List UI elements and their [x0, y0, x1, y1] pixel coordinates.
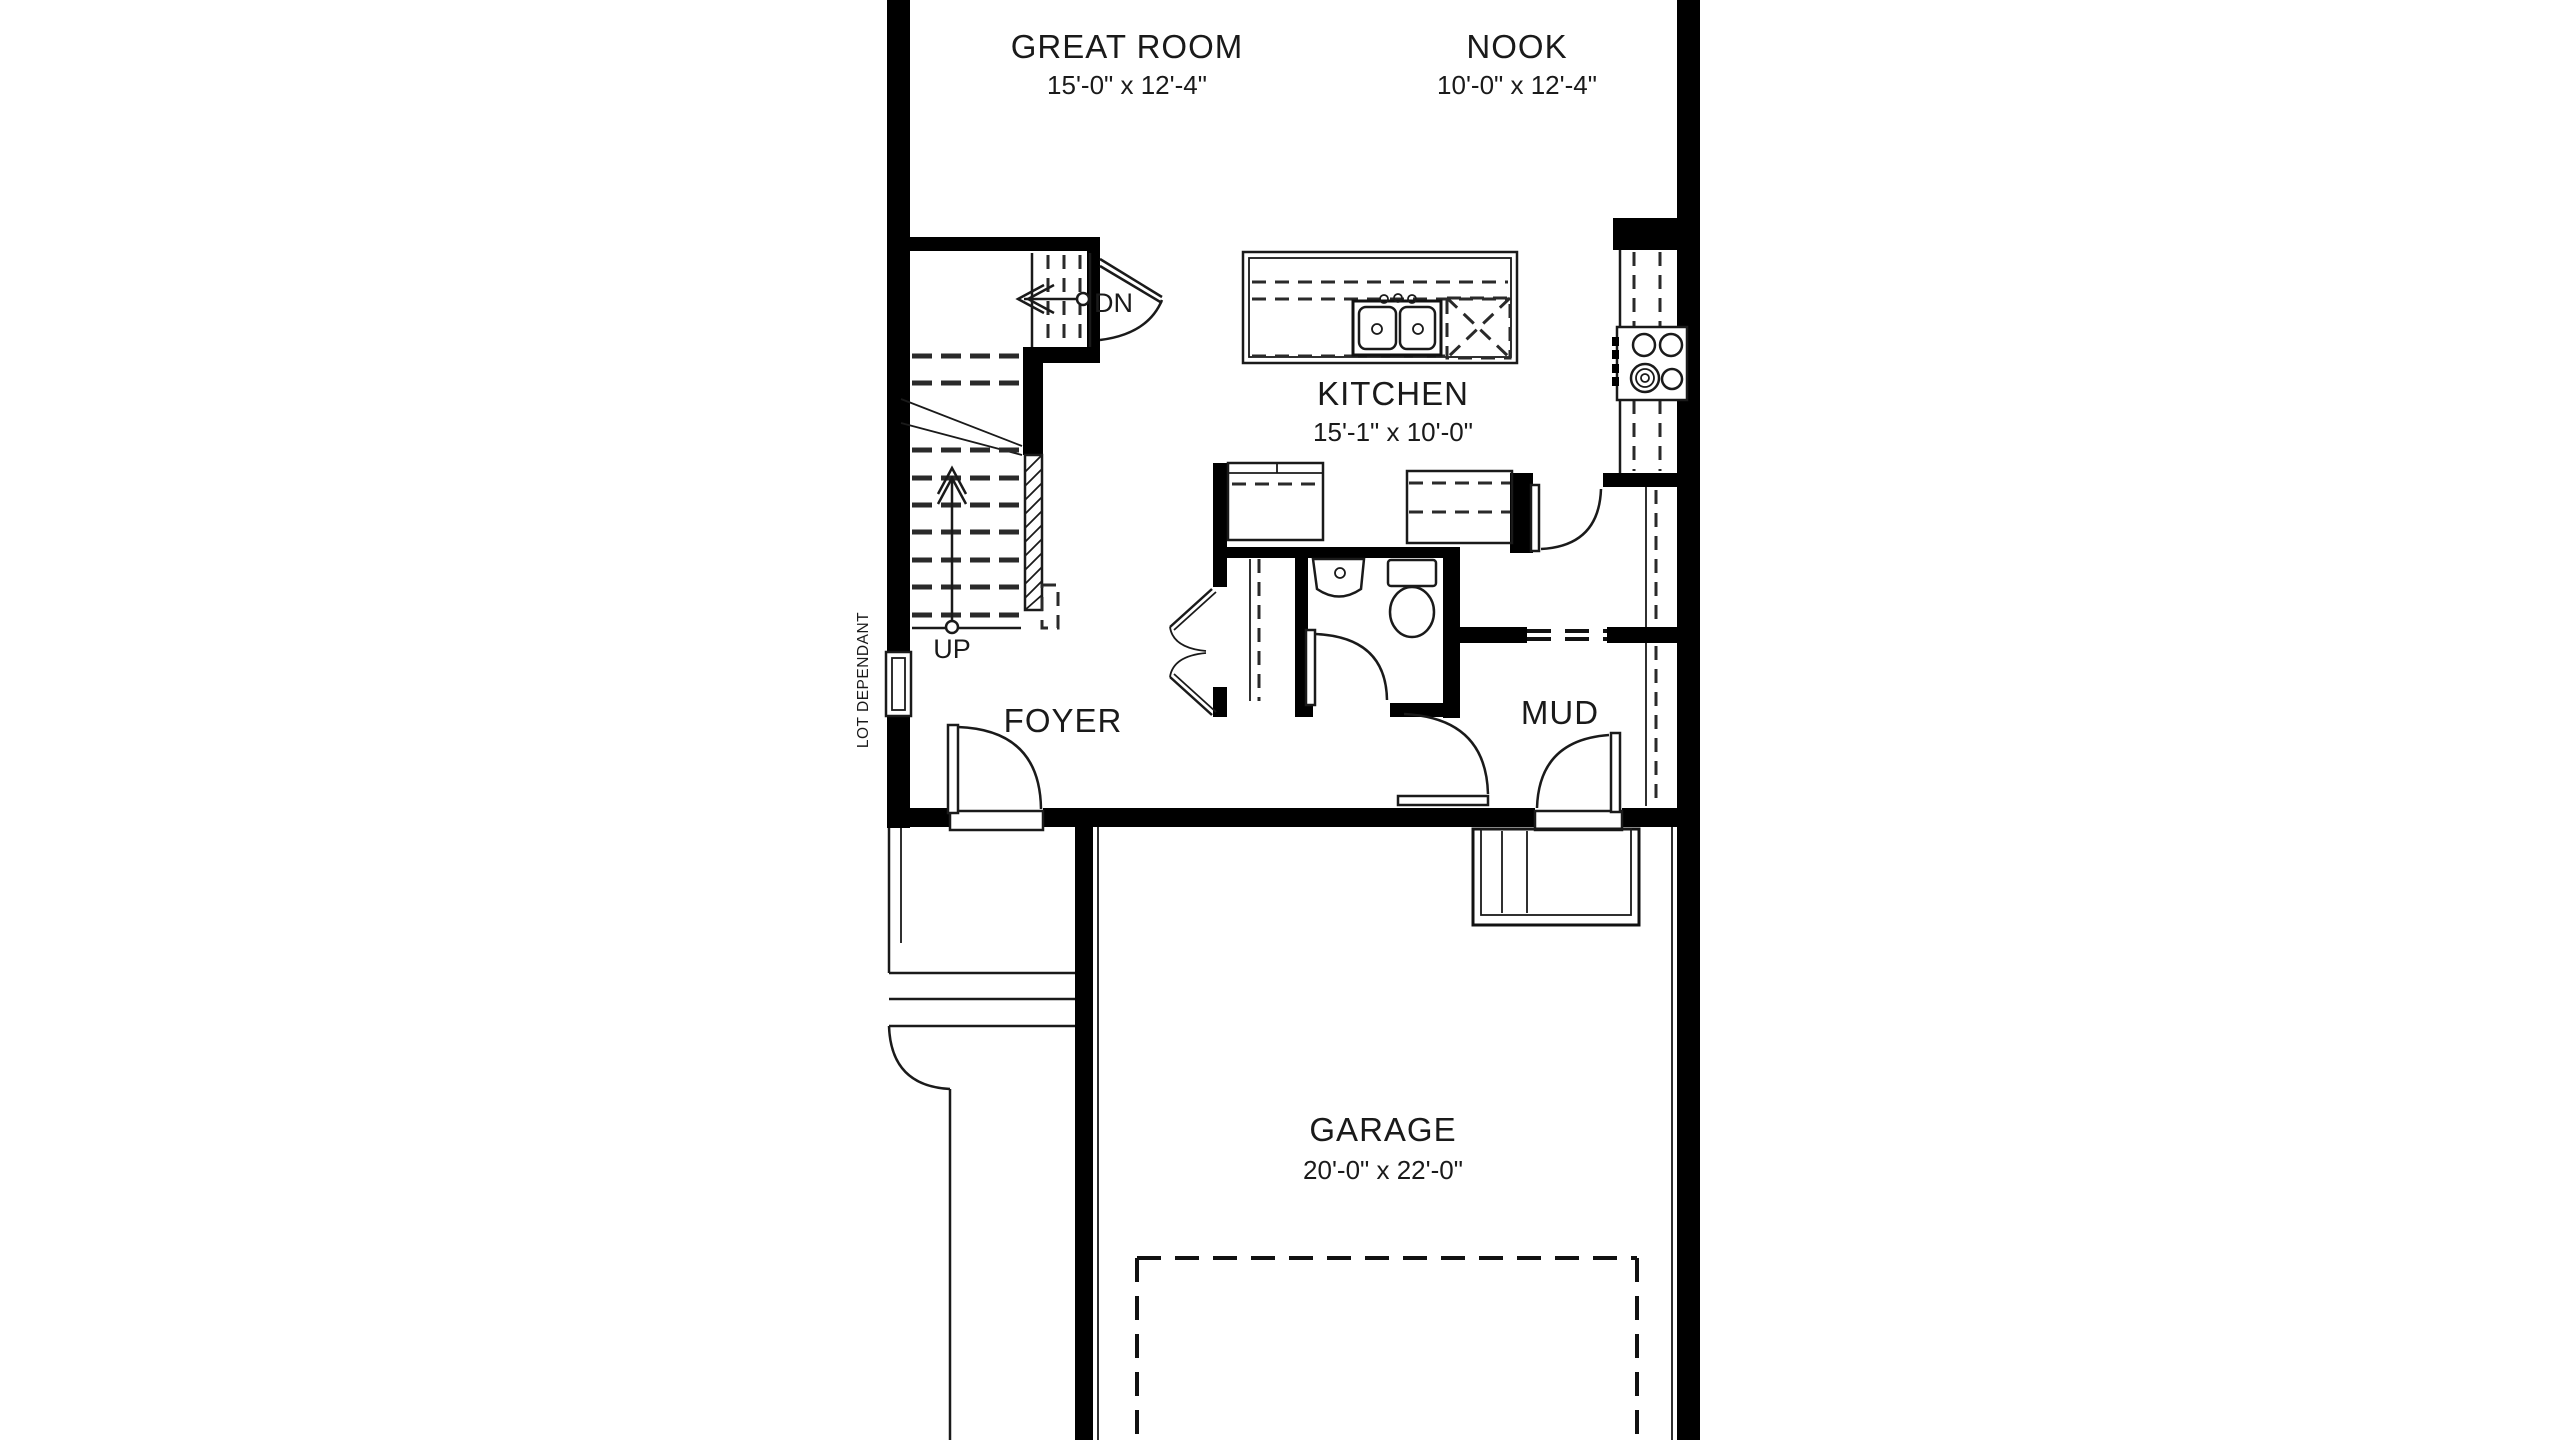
nook-dims: 10'-0" x 12'-4"	[1437, 70, 1597, 100]
lot-dependant-note: LOT DEPENDANT	[855, 612, 872, 748]
garage-parking-outline	[1137, 1258, 1637, 1440]
floor-plan-page: UP DN	[0, 0, 2560, 1440]
kitchen-dims: 15'-1" x 10'-0"	[1313, 417, 1473, 447]
range	[1612, 327, 1687, 400]
stair-treads-lower	[912, 450, 1021, 628]
foyer-label: FOYER	[1004, 702, 1123, 739]
floor-plan: UP DN	[0, 0, 2560, 1440]
stair-break-lines	[901, 399, 1022, 455]
toilet	[1388, 560, 1436, 637]
great-room-dims: 15'-0" x 12'-4"	[1047, 70, 1207, 100]
dishwasher	[1447, 298, 1510, 358]
kitchen-base-counters	[1228, 463, 1512, 543]
kitchen-hall-door	[1531, 485, 1601, 551]
nook-label: NOOK	[1466, 28, 1567, 65]
interior-walls	[900, 218, 1700, 718]
wall-counter	[1612, 250, 1687, 473]
stair-railing-hatched	[1025, 455, 1058, 628]
kitchen-island	[1243, 252, 1517, 363]
staircase: UP DN	[901, 253, 1162, 664]
mud-garage-door	[1535, 733, 1622, 830]
counter-right	[1407, 471, 1512, 543]
garage-dims: 20'-0" x 22'-0"	[1303, 1155, 1463, 1185]
mud-label: MUD	[1521, 694, 1599, 731]
powder-door	[1306, 630, 1387, 705]
kitchen-label: KITCHEN	[1317, 375, 1469, 412]
porch-steps	[889, 973, 1075, 1026]
powder-room	[1306, 559, 1436, 705]
front-door	[948, 725, 1043, 830]
mud-cased-opening	[1527, 631, 1607, 639]
garage-label: GARAGE	[1309, 1111, 1456, 1148]
room-labels: GREAT ROOM 15'-0" x 12'-4" NOOK 10'-0" x…	[855, 28, 1599, 1185]
foyer-mud-door	[1398, 714, 1488, 805]
dn-label: DN	[1094, 288, 1133, 318]
up-arrow	[938, 468, 966, 633]
counter-left	[1228, 463, 1323, 540]
walkway-curve	[889, 1026, 950, 1089]
vanity-sink	[1313, 559, 1364, 597]
up-label: UP	[933, 634, 971, 664]
double-sink	[1353, 294, 1441, 355]
mud-lockers	[1646, 487, 1656, 806]
stair-treads-upper	[912, 356, 1021, 383]
down-arrow	[1018, 285, 1089, 313]
great-room-label: GREAT ROOM	[1011, 28, 1243, 65]
window	[886, 652, 911, 716]
garage-landing	[1473, 829, 1639, 925]
porch	[889, 828, 1075, 1440]
